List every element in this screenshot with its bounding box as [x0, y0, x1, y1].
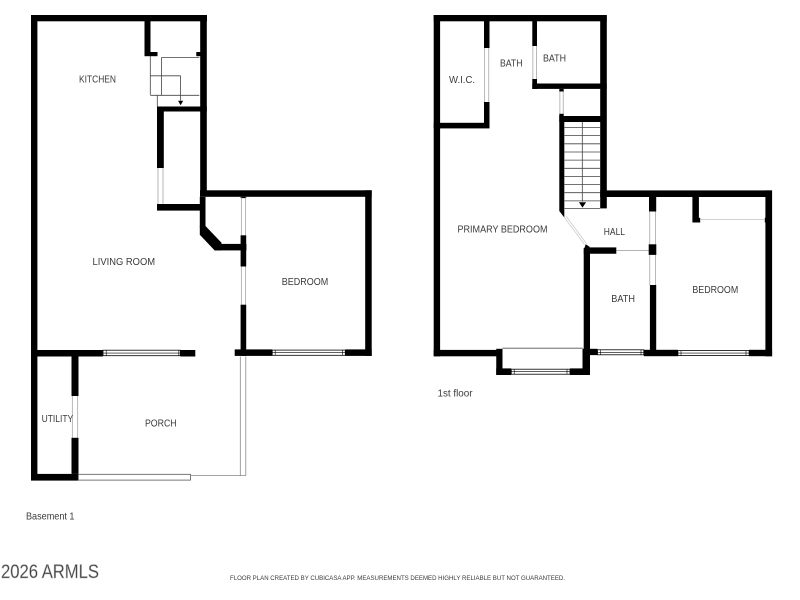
- svg-text:BEDROOM: BEDROOM: [282, 276, 329, 288]
- svg-text:PRIMARY BEDROOM: PRIMARY BEDROOM: [458, 224, 548, 236]
- svg-text:Basement 1: Basement 1: [26, 512, 75, 523]
- svg-text:KITCHEN: KITCHEN: [79, 74, 116, 86]
- svg-text:HALL: HALL: [604, 226, 625, 238]
- svg-text:W.I.C.: W.I.C.: [449, 74, 475, 86]
- svg-text:BEDROOM: BEDROOM: [692, 284, 738, 296]
- svg-text:BATH: BATH: [500, 58, 523, 70]
- svg-text:PORCH: PORCH: [145, 417, 177, 429]
- svg-text:1st floor: 1st floor: [438, 389, 474, 400]
- svg-text:BATH: BATH: [611, 293, 635, 305]
- svg-text:FLOOR PLAN CREATED BY CUBICASA: FLOOR PLAN CREATED BY CUBICASA APP. MEAS…: [230, 575, 565, 582]
- svg-text:UTILITY: UTILITY: [42, 413, 74, 425]
- svg-text:2026 ARMLS: 2026 ARMLS: [1, 562, 99, 583]
- svg-text:LIVING ROOM: LIVING ROOM: [93, 256, 156, 268]
- svg-text:BATH: BATH: [543, 53, 566, 65]
